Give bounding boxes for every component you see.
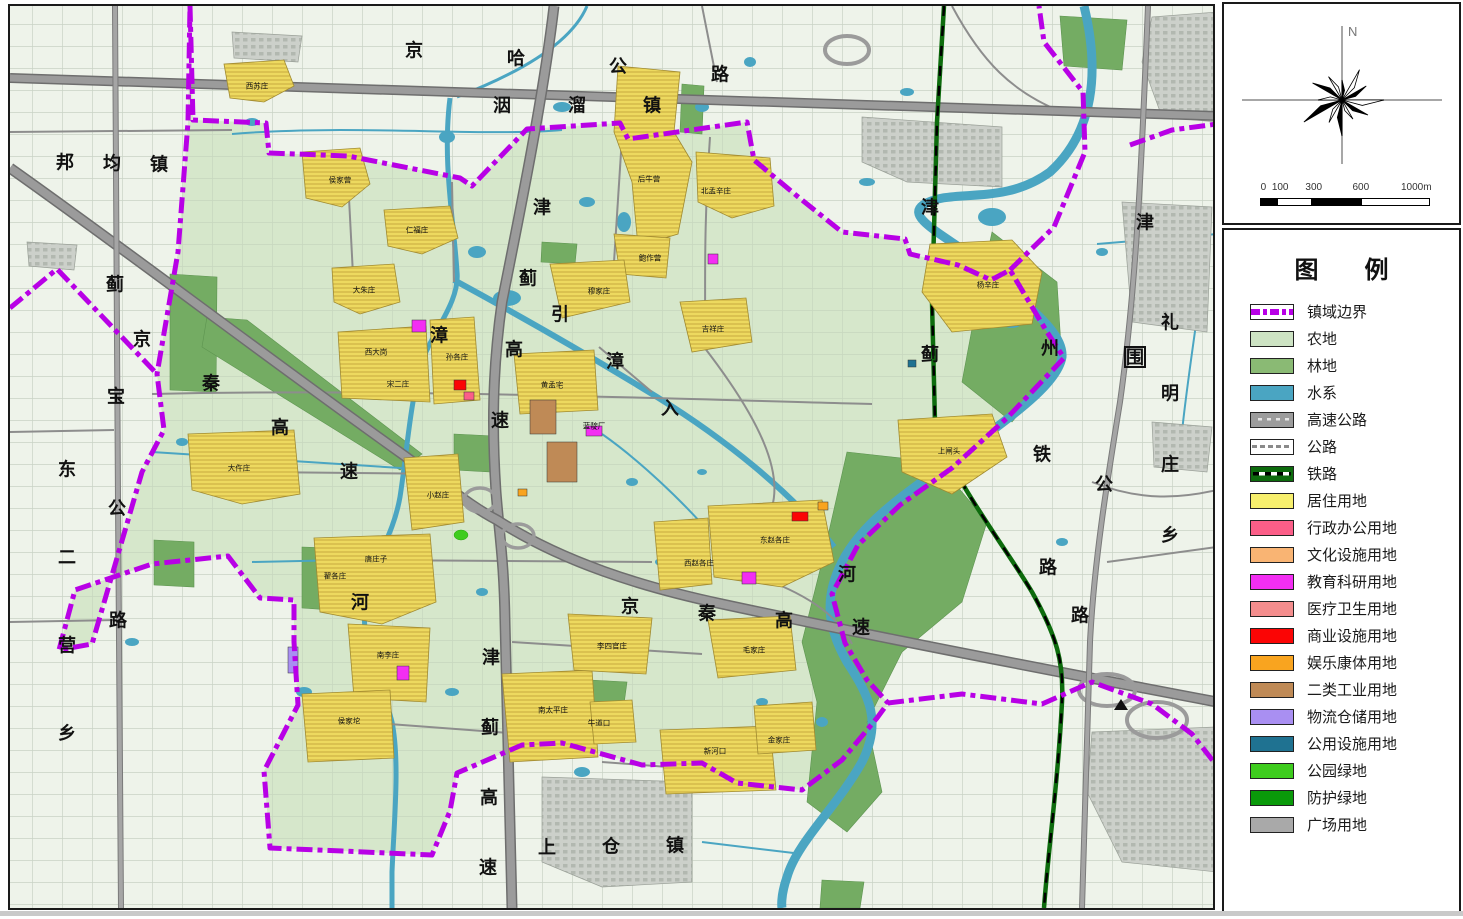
legend-label: 居住用地 <box>1307 490 1367 511</box>
legend-item: 林地 <box>1250 357 1459 374</box>
map-label: 蓟 <box>920 344 939 364</box>
scale-segment <box>1311 199 1361 205</box>
legend-label: 行政办公用地 <box>1307 517 1397 538</box>
legend-swatch <box>1250 439 1294 455</box>
legend-item: 教育科研用地 <box>1250 573 1459 590</box>
village-label: 翟各庄 <box>324 571 347 581</box>
village-label: 西大岗 <box>365 347 388 357</box>
legend-swatch <box>1250 466 1294 482</box>
legend-item: 公路 <box>1250 438 1459 455</box>
map-label: 州 <box>1040 338 1059 358</box>
village-label: 杨辛庄 <box>977 280 1000 290</box>
scale-bar: 0 100 300 600 1000m <box>1260 182 1428 212</box>
education-patch <box>742 572 756 584</box>
town-plan-map: 京哈公路洇溜镇邦均镇东二营乡蓟宝公路京秦高速津蓟高速引漳入州河漳河津蓟铁路津围公… <box>10 6 1215 910</box>
legend-item: 物流仓储用地 <box>1250 708 1459 725</box>
legend-swatch <box>1250 574 1294 590</box>
admin-patch <box>464 392 474 400</box>
compass-panel: N 0 100 300 600 1000m <box>1222 2 1461 225</box>
legend-label: 公路 <box>1307 436 1337 457</box>
legend-label: 公园绿地 <box>1307 760 1367 781</box>
commercial-patch <box>792 512 808 521</box>
map-label: 河 <box>351 592 369 612</box>
legend-label: 铁路 <box>1307 463 1337 484</box>
scale-tick: 0 <box>1261 182 1267 193</box>
map-label: 路 <box>1071 604 1090 625</box>
legend-swatch <box>1250 304 1294 320</box>
village-label: 南太平庄 <box>538 705 568 715</box>
legend-swatch <box>1250 817 1294 833</box>
village-label: 穆家庄 <box>588 286 611 296</box>
village-label: 金家庄 <box>768 735 791 745</box>
legend-swatch <box>1250 709 1294 725</box>
scale-tick: 600 <box>1352 182 1369 193</box>
legend-label: 防护绿地 <box>1307 787 1367 808</box>
legend-item: 医疗卫生用地 <box>1250 600 1459 617</box>
legend-swatch <box>1250 520 1294 536</box>
legend-item: 铁路 <box>1250 465 1459 482</box>
legend-item: 公用设施用地 <box>1250 735 1459 752</box>
village-label: 宋二庄 <box>387 379 410 389</box>
legend-item: 文化设施用地 <box>1250 546 1459 563</box>
village-label: 上闸头 <box>938 446 961 456</box>
village-label: 新河口 <box>704 746 727 756</box>
legend-swatch <box>1250 358 1294 374</box>
legend-item: 居住用地 <box>1250 492 1459 509</box>
village-label: 小赵庄 <box>427 490 450 500</box>
village-label: 大仵庄 <box>228 463 251 473</box>
legend-item: 二类工业用地 <box>1250 681 1459 698</box>
map-label: 铁 <box>1033 443 1051 464</box>
legend-label: 镇域边界 <box>1307 301 1367 322</box>
legend-swatch <box>1250 682 1294 698</box>
legend-label: 二类工业用地 <box>1307 679 1397 700</box>
village-label: 吉祥庄 <box>702 324 725 334</box>
legend-label: 水系 <box>1307 382 1337 403</box>
industry-patch <box>530 400 556 434</box>
village-label: 李四官庄 <box>597 641 627 651</box>
legend-item: 商业设施用地 <box>1250 627 1459 644</box>
legend-swatch <box>1250 790 1294 806</box>
legend-item: 防护绿地 <box>1250 789 1459 806</box>
village-label: 大朱庄 <box>353 285 376 295</box>
map-label: 津 <box>921 196 939 217</box>
legend-label: 娱乐康体用地 <box>1307 652 1397 673</box>
commercial-patch <box>454 380 466 390</box>
legend-item: 娱乐康体用地 <box>1250 654 1459 671</box>
legend-item: 公园绿地 <box>1250 762 1459 779</box>
legend-swatch <box>1250 655 1294 671</box>
map-label: 路 <box>1039 556 1058 577</box>
map-label: 河 <box>838 564 856 584</box>
legend-swatch <box>1250 547 1294 563</box>
map-label: 公 <box>1095 474 1113 494</box>
village-label: 南李庄 <box>377 650 400 660</box>
village-label: 牛道口 <box>588 718 611 728</box>
village-label: 毛家庄 <box>743 645 766 655</box>
legend-swatch <box>1250 385 1294 401</box>
legend-label: 广场用地 <box>1307 814 1367 835</box>
legend-label: 农地 <box>1307 328 1337 349</box>
village-label: 孙各庄 <box>446 352 469 362</box>
legend-label: 公用设施用地 <box>1307 733 1397 754</box>
map-label: 漳 <box>430 324 448 345</box>
recreation-patch <box>818 502 828 510</box>
legend-swatch <box>1250 601 1294 617</box>
village-label: 唐庄子 <box>365 554 388 564</box>
legend-swatch <box>1250 628 1294 644</box>
scale-tick: 1000m <box>1401 182 1432 193</box>
bottom-bar <box>0 911 1463 916</box>
map-label: 邦均镇 <box>56 151 168 174</box>
village-label: 东赵各庄 <box>760 535 790 545</box>
education-patch <box>397 666 409 680</box>
legend-swatch <box>1250 493 1294 509</box>
scale-segment <box>1261 199 1278 205</box>
legend-item: 行政办公用地 <box>1250 519 1459 536</box>
map-label: 围 <box>1126 347 1144 367</box>
legend-label: 高速公路 <box>1307 409 1367 430</box>
industry-patch <box>547 442 577 482</box>
recreation-patch <box>518 489 527 496</box>
scale-tick: 300 <box>1305 182 1322 193</box>
legend-items: 镇域边界农地林地水系高速公路公路铁路居住用地行政办公用地文化设施用地教育科研用地… <box>1224 303 1459 833</box>
education-patch <box>708 254 718 264</box>
village-label: 鲍作营 <box>639 253 662 263</box>
village-label: 西苏庄 <box>246 81 269 91</box>
scale-tick: 100 <box>1272 182 1289 193</box>
village-label: 仁福庄 <box>406 225 429 235</box>
village-label: 西赵各庄 <box>684 558 714 568</box>
legend-label: 教育科研用地 <box>1307 571 1397 592</box>
legend-label: 商业设施用地 <box>1307 625 1397 646</box>
legend-item: 高速公路 <box>1250 411 1459 428</box>
wind-rose: N <box>1224 4 1459 164</box>
map-label: 津 <box>1136 211 1154 232</box>
utility-patch <box>908 360 916 367</box>
village-label: 后牛营 <box>638 174 661 184</box>
map-canvas: 京哈公路洇溜镇邦均镇东二营乡蓟宝公路京秦高速津蓟高速引漳入州河漳河津蓟铁路津围公… <box>8 4 1215 910</box>
education-patch <box>412 320 426 332</box>
scale-segment <box>1362 199 1429 205</box>
legend-title: 图例 <box>1224 250 1459 285</box>
village-label: 侯家坨 <box>338 716 361 726</box>
legend-label: 文化设施用地 <box>1307 544 1397 565</box>
legend-swatch <box>1250 331 1294 347</box>
legend-swatch <box>1250 412 1294 428</box>
legend-item: 广场用地 <box>1250 816 1459 833</box>
scale-segment <box>1278 199 1312 205</box>
village-label: 北孟辛庄 <box>701 186 731 196</box>
legend-label: 林地 <box>1307 355 1337 376</box>
legend-swatch <box>1250 763 1294 779</box>
village-label: 侯家营 <box>329 175 352 185</box>
north-label: N <box>1348 24 1357 39</box>
legend-label: 医疗卫生用地 <box>1307 598 1397 619</box>
legend-item: 镇域边界 <box>1250 303 1459 320</box>
legend-label: 物流仓储用地 <box>1307 706 1397 727</box>
rose-petal <box>1304 100 1342 122</box>
village-label: 黄孟宅 <box>541 380 564 390</box>
legend-swatch <box>1250 736 1294 752</box>
legend-item: 水系 <box>1250 384 1459 401</box>
village-label: 蓝靛厂 <box>583 421 606 431</box>
legend-panel: 图例 镇域边界农地林地水系高速公路公路铁路居住用地行政办公用地文化设施用地教育科… <box>1222 228 1461 913</box>
legend-item: 农地 <box>1250 330 1459 347</box>
